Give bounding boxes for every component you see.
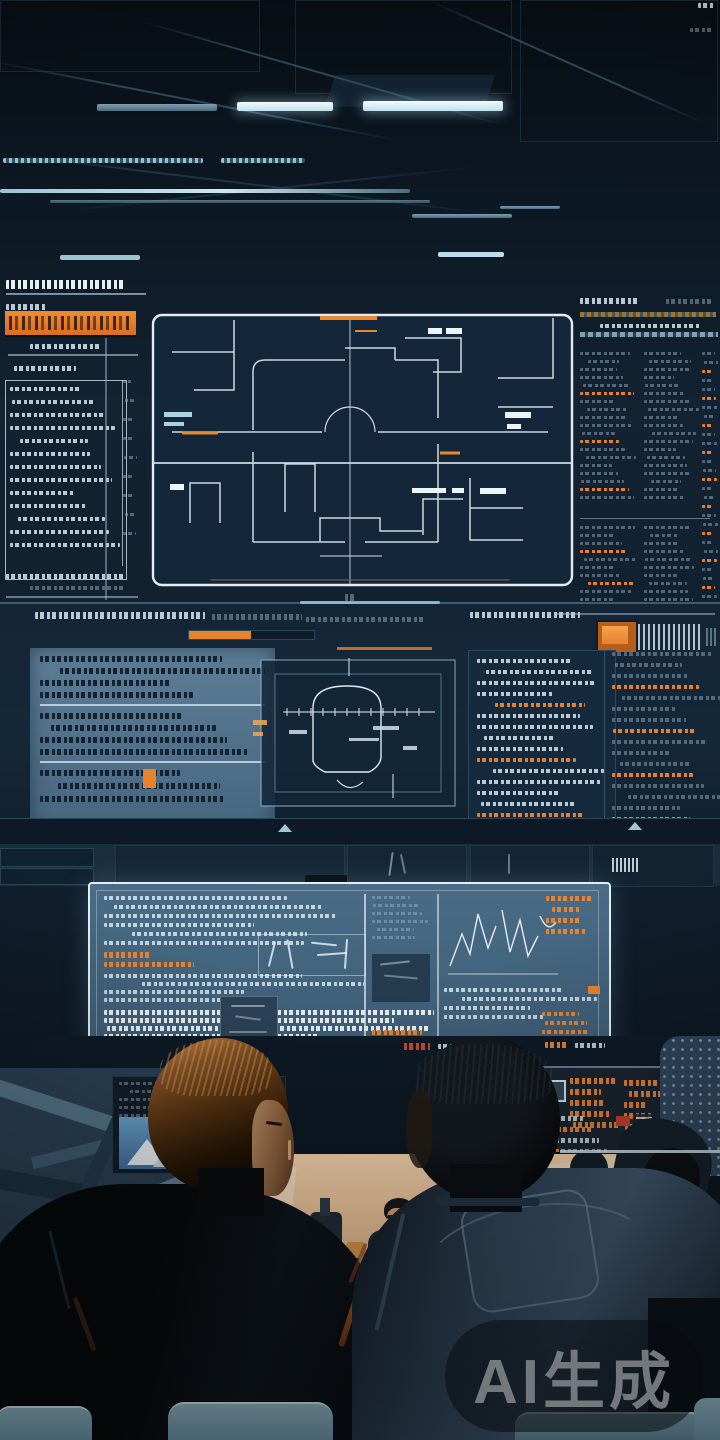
data-column-orange — [702, 352, 718, 622]
data-column — [644, 352, 696, 512]
text-row — [580, 352, 630, 355]
ceiling-light — [50, 200, 430, 203]
text-row — [702, 532, 712, 535]
text-row — [702, 370, 711, 373]
text-row — [615, 663, 682, 667]
text-row — [650, 534, 680, 537]
text-row — [104, 914, 337, 918]
text-row — [10, 426, 115, 430]
text-row — [583, 384, 631, 387]
text-row — [628, 795, 720, 799]
text-row — [123, 437, 135, 440]
text-row — [580, 542, 622, 545]
text-row — [702, 568, 712, 571]
text-row — [10, 478, 112, 482]
text-row — [644, 464, 687, 467]
text-row — [702, 379, 713, 382]
text-row — [377, 928, 414, 931]
text-row — [644, 400, 690, 403]
ceiling-light — [438, 252, 504, 257]
text-row — [644, 574, 677, 577]
text-row — [40, 749, 249, 755]
chair-back — [168, 1402, 333, 1440]
text-row — [620, 762, 691, 766]
text-row — [10, 504, 86, 508]
text-row — [40, 692, 193, 698]
text-row — [580, 534, 616, 537]
text-row — [477, 791, 559, 795]
text-row — [702, 487, 711, 490]
text-row — [580, 416, 626, 419]
text-row — [123, 532, 136, 535]
text-row — [493, 769, 605, 773]
text-row — [586, 456, 636, 459]
text-row — [125, 399, 134, 402]
ceiling-light — [500, 206, 560, 209]
text-row — [123, 494, 133, 497]
text-row — [704, 496, 715, 499]
text-row — [588, 582, 634, 585]
text-row — [40, 656, 222, 662]
text-row — [580, 472, 618, 475]
ceiling-light — [363, 101, 503, 111]
text-row — [40, 713, 182, 719]
text-row — [612, 707, 675, 711]
text-row — [10, 452, 90, 456]
text-row — [702, 424, 714, 427]
tick-marker — [278, 824, 292, 832]
text-row — [644, 590, 688, 593]
blueprint-screen — [150, 312, 575, 588]
text-row — [372, 896, 410, 899]
text-row — [582, 432, 616, 435]
text-row — [552, 907, 582, 912]
text-row — [51, 725, 215, 731]
text-row — [580, 392, 634, 395]
text-row — [584, 558, 637, 561]
text-row — [612, 652, 713, 656]
text-row — [546, 896, 593, 901]
ceiling-light — [3, 158, 203, 163]
text-row — [18, 517, 105, 521]
text-row — [702, 514, 716, 517]
text-row — [373, 904, 417, 907]
upper-band — [0, 268, 720, 604]
text-row — [546, 918, 581, 923]
text-row — [612, 718, 686, 722]
text-row — [704, 361, 718, 364]
text-row — [104, 896, 287, 900]
text-row — [702, 388, 714, 391]
tick-marker — [628, 822, 642, 830]
small-side-panels — [0, 848, 94, 867]
text-row — [444, 988, 564, 992]
text-row — [647, 456, 684, 459]
text-row — [10, 413, 104, 417]
chair-back — [694, 1398, 720, 1440]
text-row — [703, 523, 719, 526]
orange-cell — [143, 769, 156, 788]
ceiling-light — [97, 104, 217, 111]
text-row — [612, 685, 699, 689]
text-row — [477, 747, 563, 751]
text-row — [587, 408, 628, 411]
text-row — [702, 505, 714, 508]
text-row — [645, 384, 680, 387]
text-row — [612, 806, 680, 810]
ceiling-light — [237, 102, 333, 111]
left-console-panel — [30, 648, 275, 834]
text-row — [702, 595, 717, 598]
text-row — [114, 905, 322, 909]
text-row — [580, 368, 617, 371]
text-row — [702, 586, 715, 589]
text-row — [704, 550, 718, 553]
text-row — [580, 440, 619, 443]
text-row — [612, 740, 707, 744]
orange-button — [596, 620, 638, 654]
text-row — [644, 472, 692, 475]
text-row — [644, 488, 680, 491]
text-row — [580, 376, 623, 379]
text-row — [477, 725, 593, 729]
corner-glyphs — [698, 3, 714, 8]
text-row — [702, 460, 713, 463]
text-row — [123, 475, 132, 478]
progress-bar — [188, 630, 315, 640]
text-row — [104, 923, 254, 927]
text-row — [104, 990, 244, 994]
monitor-orange-rows — [546, 896, 598, 940]
left-person-neck — [198, 1168, 264, 1216]
text-row — [580, 424, 632, 427]
right-data-panel — [578, 290, 720, 604]
text-row — [644, 550, 684, 553]
ai-watermark: AI生成 — [445, 1320, 703, 1432]
text-row — [648, 408, 699, 411]
orange-highlight-bar — [5, 311, 136, 335]
text-row — [580, 526, 635, 529]
text-row — [580, 400, 615, 403]
text-row — [652, 432, 696, 435]
text-row — [477, 714, 580, 718]
ceiling-light — [0, 189, 410, 193]
text-row — [546, 929, 586, 934]
text-row — [40, 737, 227, 743]
barcode-strip — [638, 624, 702, 650]
text-row — [649, 360, 691, 363]
text-row — [477, 780, 602, 784]
center-text-panel — [468, 650, 616, 846]
text-row — [12, 400, 95, 404]
text-row — [612, 784, 704, 788]
text-row — [10, 530, 109, 534]
text-row — [542, 1012, 579, 1016]
text-row — [20, 439, 88, 443]
text-row — [10, 543, 120, 547]
text-row — [372, 920, 428, 923]
text-row — [644, 496, 685, 499]
text-row — [581, 480, 624, 483]
text-row — [702, 442, 717, 445]
control-room-illustration: AI生成 — [0, 0, 720, 1440]
text-row — [542, 1030, 590, 1034]
text-row — [10, 465, 101, 469]
text-row — [580, 566, 615, 569]
text-row — [124, 456, 137, 459]
text-row — [649, 582, 687, 585]
text-row — [702, 559, 717, 562]
ai-watermark-text: AI生成 — [473, 1331, 675, 1421]
text-row — [645, 558, 690, 561]
text-row — [60, 668, 265, 674]
text-row — [462, 997, 597, 1001]
text-row — [644, 376, 674, 379]
text-row — [644, 598, 693, 601]
progress-fill — [189, 631, 251, 639]
corner-glyphs — [690, 28, 712, 32]
text-row — [644, 392, 685, 395]
text-row — [484, 736, 557, 740]
vessel-schematic — [253, 650, 463, 818]
text-row — [702, 352, 715, 355]
text-row — [702, 541, 714, 544]
data-column — [580, 352, 636, 512]
text-row — [580, 590, 632, 593]
text-row — [477, 681, 597, 685]
text-row — [702, 433, 715, 436]
text-row — [644, 424, 683, 427]
text-row — [702, 478, 717, 481]
text-row — [580, 598, 613, 601]
text-row — [703, 577, 715, 580]
text-row — [704, 415, 714, 418]
text-row — [123, 380, 131, 383]
text-row — [142, 982, 365, 986]
text-row — [580, 488, 629, 491]
text-row — [580, 448, 625, 451]
text-row — [612, 674, 689, 678]
monitor-mid-column — [372, 896, 432, 946]
text-row — [612, 773, 693, 777]
text-row — [10, 491, 75, 495]
text-row — [651, 480, 682, 483]
text-row — [644, 440, 693, 443]
text-row — [702, 451, 712, 454]
text-row — [495, 703, 585, 707]
ceiling-light — [221, 158, 305, 163]
text-row — [40, 796, 225, 802]
glass-panel-shelf — [0, 844, 720, 886]
text-row — [702, 397, 716, 400]
text-row — [613, 729, 697, 733]
left-data-panel — [0, 268, 150, 604]
ceiling — [0, 0, 720, 270]
text-row — [588, 360, 619, 363]
text-row — [372, 936, 415, 939]
text-row — [123, 418, 134, 421]
text-row — [644, 368, 691, 371]
text-row — [58, 783, 220, 789]
text-row — [477, 659, 571, 663]
text-row — [580, 464, 612, 467]
text-row — [702, 406, 718, 409]
text-row — [444, 1006, 530, 1010]
text-row — [580, 550, 628, 553]
text-row — [477, 692, 554, 696]
ceiling-light — [60, 255, 140, 260]
text-row — [477, 758, 576, 762]
text-row — [644, 542, 679, 545]
text-row — [10, 387, 82, 391]
text-row — [644, 526, 691, 529]
text-row — [580, 574, 620, 577]
text-row — [545, 1021, 587, 1025]
text-row — [644, 352, 681, 355]
form-table — [5, 380, 127, 580]
text-row — [477, 813, 585, 817]
text-row — [580, 496, 634, 499]
right-console-column — [612, 652, 716, 838]
text-row — [444, 1015, 545, 1019]
text-row — [703, 469, 716, 472]
text-row — [644, 448, 676, 451]
chair-back — [0, 1406, 92, 1440]
text-row — [644, 416, 678, 419]
sketch-box — [258, 934, 366, 976]
text-row — [372, 912, 422, 915]
text-row — [125, 513, 137, 516]
text-row — [481, 802, 576, 806]
text-row — [622, 696, 720, 700]
text-row — [486, 670, 593, 674]
right-person-profile — [406, 1092, 432, 1168]
text-row — [644, 566, 694, 569]
text-row — [40, 680, 171, 686]
ceiling-light — [412, 214, 512, 218]
text-row — [40, 770, 180, 776]
middle-band — [0, 604, 720, 844]
mid-dark-blob — [372, 954, 430, 1002]
text-row — [612, 751, 672, 755]
